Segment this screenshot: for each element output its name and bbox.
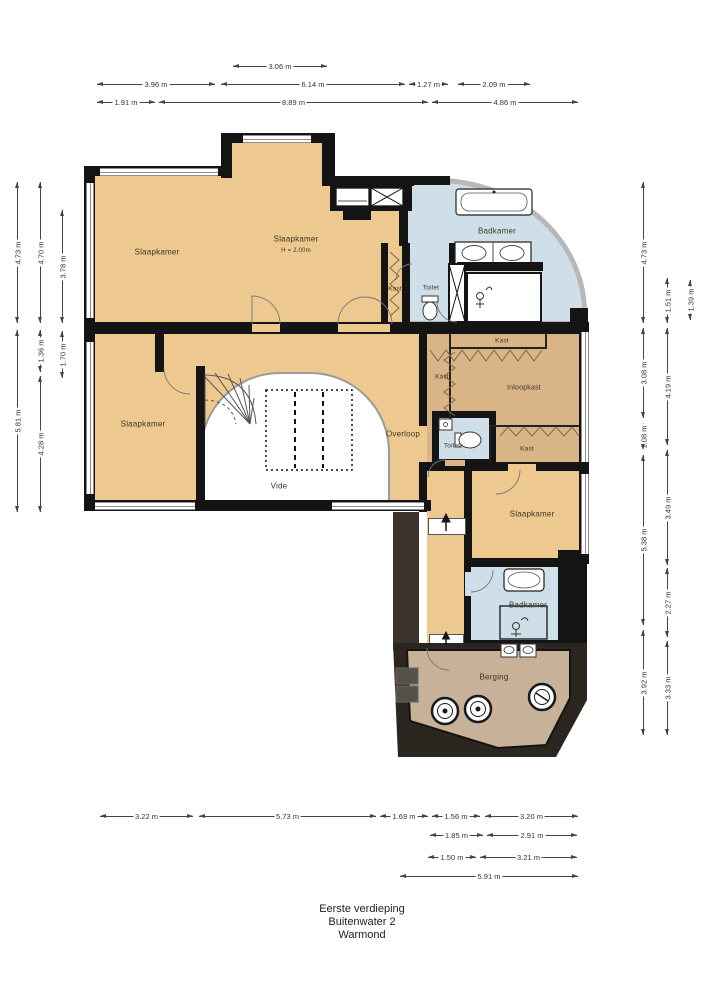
- title-line-3: Warmond: [262, 929, 462, 942]
- dimension-right: 1.39 m: [690, 280, 691, 320]
- dimension-label: 4.86 m: [492, 98, 519, 107]
- dimension-label: 1.39 m: [687, 287, 696, 314]
- dimension-lines: 3.06 m3.96 m6.14 m1.27 m2.09 m1.91 m8.89…: [0, 0, 707, 1000]
- dimension-label: 3.08 m: [640, 360, 649, 387]
- dimension-label: 5.38 m: [640, 527, 649, 554]
- dimension-label: 5.91 m: [476, 872, 503, 881]
- dimension-left: 4.28 m: [40, 376, 41, 512]
- floorplan-page: SlaapkamerSlaapkamerH = 2.00mBadkamerToi…: [0, 0, 707, 1000]
- dimension-label: 1.70 m: [59, 341, 68, 368]
- dimension-top: 6.14 m: [221, 84, 405, 85]
- title-line-2: Buitenwater 2: [262, 916, 462, 929]
- dimension-label: 3.49 m: [664, 494, 673, 521]
- dimension-top: 2.09 m: [458, 84, 530, 85]
- dimension-bottom: 5.91 m: [400, 876, 578, 877]
- dimension-label: 3.21 m: [515, 853, 542, 862]
- title-block: Eerste verdieping Buitenwater 2 Warmond: [262, 903, 462, 942]
- dimension-top: 4.86 m: [432, 102, 578, 103]
- dimension-bottom: 3.21 m: [480, 857, 577, 858]
- dimension-bottom: 1.85 m: [430, 835, 483, 836]
- dimension-label: 1.27 m: [415, 80, 442, 89]
- dimension-right: 4.19 m: [667, 328, 668, 445]
- dimension-label: 1.91 m: [113, 98, 140, 107]
- dimension-label: 8.89 m: [280, 98, 307, 107]
- dimension-left: 3.78 m: [62, 210, 63, 323]
- dimension-left: 4.70 m: [40, 182, 41, 323]
- dimension-label: 3.96 m: [143, 80, 170, 89]
- dimension-bottom: 1.69 m: [380, 816, 428, 817]
- dimension-label: 1.85 m: [443, 831, 470, 840]
- dimension-label: 4.73 m: [14, 239, 23, 266]
- dimension-left: 1.70 m: [62, 331, 63, 378]
- dimension-label: 1.51 m: [664, 287, 673, 314]
- dimension-label: 3.33 m: [664, 675, 673, 702]
- dimension-top: 3.96 m: [97, 84, 215, 85]
- dimension-label: 1.69 m: [391, 812, 418, 821]
- dimension-label: 4.28 m: [37, 431, 46, 458]
- dimension-label: 3.92 m: [640, 669, 649, 696]
- dimension-top: 8.89 m: [159, 102, 428, 103]
- dimension-label: 5.81 m: [14, 408, 23, 435]
- dimension-label: 4.19 m: [664, 373, 673, 400]
- dimension-right: 2.27 m: [667, 568, 668, 637]
- dimension-label: 3.06 m: [267, 62, 294, 71]
- dimension-right: 3.08 m: [643, 328, 644, 418]
- dimension-label: 1.08 m: [640, 423, 649, 450]
- dimension-right: 4.73 m: [643, 182, 644, 323]
- dimension-right: 1.51 m: [667, 278, 668, 323]
- dimension-label: 3.22 m: [133, 812, 160, 821]
- dimension-label: 2.91 m: [519, 831, 546, 840]
- dimension-bottom: 1.50 m: [428, 857, 476, 858]
- dimension-bottom: 5.73 m: [199, 816, 376, 817]
- dimension-label: 4.73 m: [640, 239, 649, 266]
- dimension-label: 1.56 m: [443, 812, 470, 821]
- dimension-label: 6.14 m: [300, 80, 327, 89]
- dimension-right: 3.33 m: [667, 641, 668, 735]
- dimension-label: 2.27 m: [664, 589, 673, 616]
- dimension-label: 4.70 m: [37, 239, 46, 266]
- dimension-right: 5.38 m: [643, 455, 644, 625]
- dimension-right: 1.08 m: [643, 423, 644, 450]
- dimension-left: 5.81 m: [17, 330, 18, 512]
- dimension-top: 3.06 m: [233, 66, 327, 67]
- dimension-top: 1.91 m: [97, 102, 155, 103]
- dimension-top: 1.27 m: [409, 84, 448, 85]
- dimension-label: 3.20 m: [518, 812, 545, 821]
- dimension-bottom: 3.20 m: [485, 816, 578, 817]
- dimension-label: 1.36 m: [37, 338, 46, 365]
- title-line-1: Eerste verdieping: [262, 903, 462, 916]
- dimension-label: 2.09 m: [481, 80, 508, 89]
- dimension-left: 4.73 m: [17, 182, 18, 323]
- dimension-bottom: 2.91 m: [487, 835, 577, 836]
- dimension-right: 3.49 m: [667, 450, 668, 565]
- dimension-bottom: 1.56 m: [432, 816, 480, 817]
- dimension-left: 1.36 m: [40, 330, 41, 372]
- dimension-label: 1.50 m: [439, 853, 466, 862]
- dimension-label: 5.73 m: [274, 812, 301, 821]
- dimension-bottom: 3.22 m: [100, 816, 193, 817]
- dimension-right: 3.92 m: [643, 630, 644, 735]
- dimension-label: 3.78 m: [59, 253, 68, 280]
